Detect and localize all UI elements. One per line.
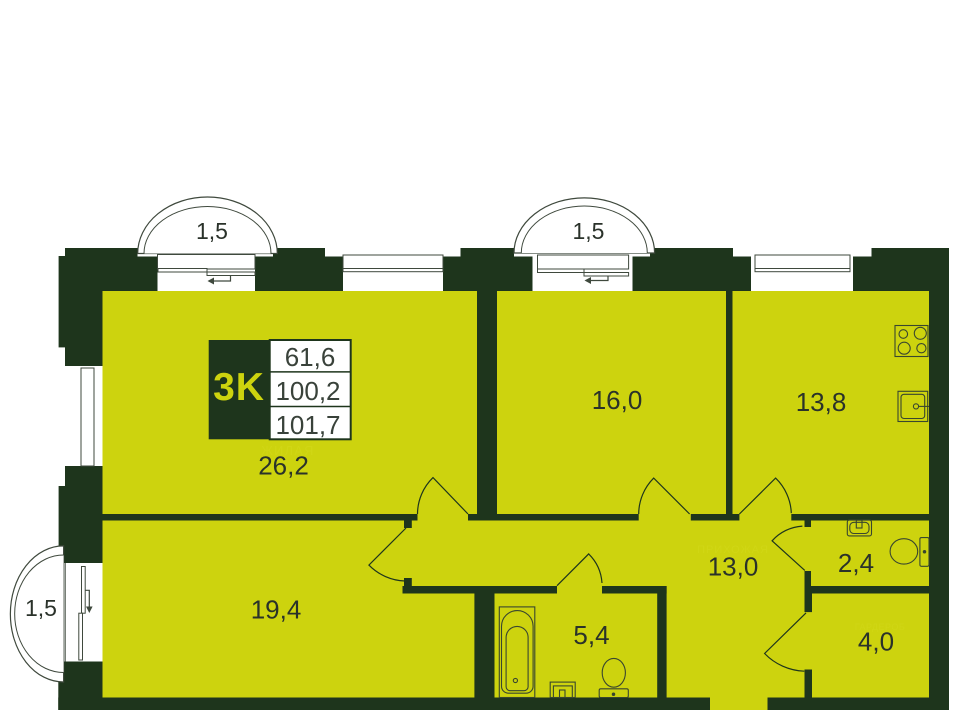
svg-text:3K: 3K [213,366,265,409]
svg-text:1,5: 1,5 [573,218,605,244]
svg-text:61,6: 61,6 [285,342,336,372]
svg-text:26,2: 26,2 [258,451,309,481]
svg-text:4,0: 4,0 [858,627,894,657]
svg-text:101,7: 101,7 [275,410,340,440]
svg-text:1,5: 1,5 [25,595,57,621]
svg-text:100,2: 100,2 [275,376,340,406]
svg-text:13,8: 13,8 [796,387,847,417]
svg-text:5,4: 5,4 [573,620,609,650]
svg-text:13,0: 13,0 [708,552,759,582]
svg-text:19,4: 19,4 [251,595,302,625]
svg-text:16,0: 16,0 [592,385,643,415]
svg-text:2,4: 2,4 [838,548,874,578]
svg-text:1,5: 1,5 [196,218,228,244]
